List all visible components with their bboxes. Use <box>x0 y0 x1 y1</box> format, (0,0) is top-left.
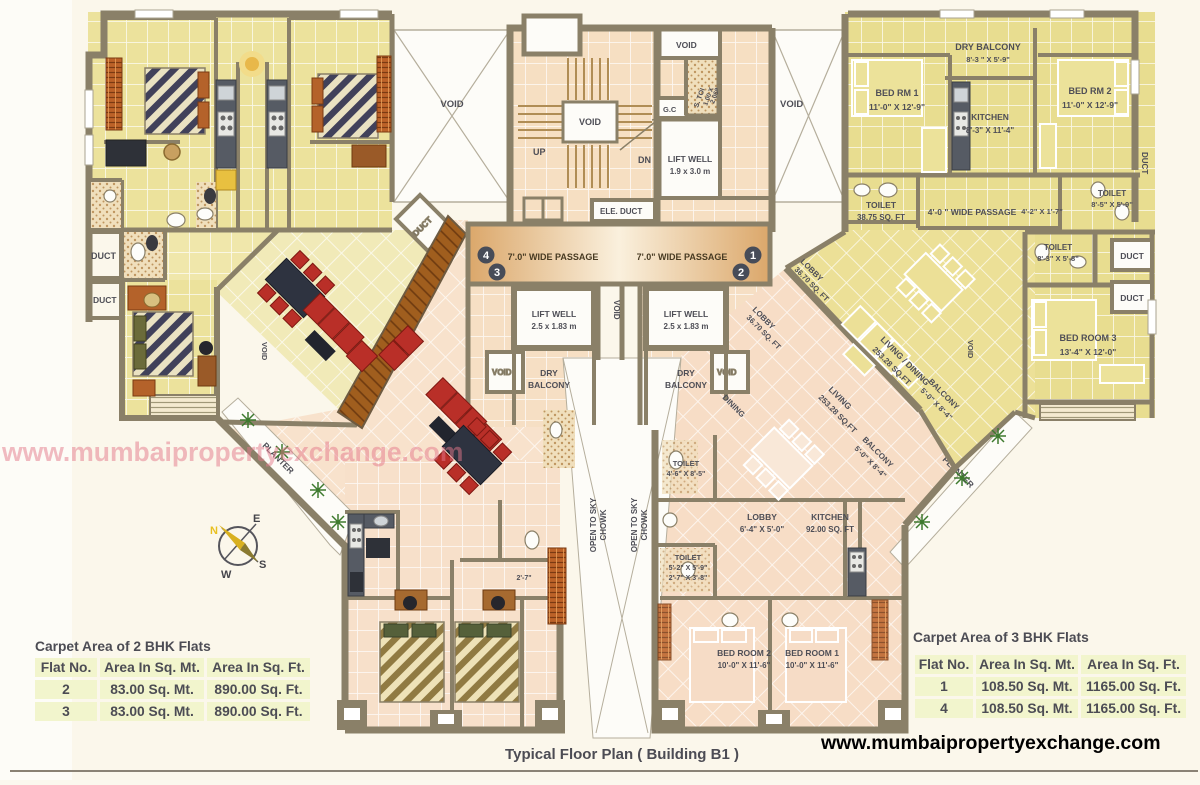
svg-text:KITCHEN: KITCHEN <box>971 112 1009 122</box>
svg-text:TOILET: TOILET <box>1044 243 1072 252</box>
svg-text:8'-5" X 5'-9": 8'-5" X 5'-9" <box>1091 200 1133 209</box>
svg-text:92.00 SQ. FT: 92.00 SQ. FT <box>806 525 854 534</box>
svg-text:OPEN TO SKY: OPEN TO SKY <box>589 497 598 552</box>
svg-text:UP: UP <box>533 147 546 157</box>
svg-text:5'-2" X 5'-9": 5'-2" X 5'-9" <box>669 565 708 572</box>
svg-text:BALCONY: BALCONY <box>665 380 707 390</box>
svg-text:S: S <box>259 559 266 571</box>
svg-text:1: 1 <box>750 250 756 262</box>
svg-text:CHOWK: CHOWK <box>599 509 608 540</box>
svg-text:VOID: VOID <box>579 117 602 127</box>
svg-text:BED ROOM 3: BED ROOM 3 <box>1059 333 1116 343</box>
svg-text:4'-0 " WIDE PASSAGE: 4'-0 " WIDE PASSAGE <box>928 207 1017 217</box>
svg-text:2'-7" X 3'-8": 2'-7" X 3'-8" <box>669 575 708 582</box>
svg-text:2.5 x 1.83 m: 2.5 x 1.83 m <box>532 322 577 331</box>
svg-text:CHOWK: CHOWK <box>640 509 649 540</box>
svg-text:LIFT WELL: LIFT WELL <box>664 309 708 319</box>
svg-text:N: N <box>210 525 218 537</box>
svg-text:38.75 SQ. FT: 38.75 SQ. FT <box>857 213 905 222</box>
svg-text:W: W <box>221 569 232 581</box>
svg-text:E: E <box>253 513 260 525</box>
svg-text:ELE. DUCT: ELE. DUCT <box>600 207 642 216</box>
svg-text:13'-4" X 12'-0": 13'-4" X 12'-0" <box>1060 347 1117 357</box>
svg-text:10'-0" X 11'-6": 10'-0" X 11'-6" <box>786 661 839 670</box>
svg-text:10'-0" X 11'-6": 10'-0" X 11'-6" <box>718 661 771 670</box>
svg-text:4'-6" X 8'-5": 4'-6" X 8'-5" <box>667 471 706 478</box>
svg-text:VOID: VOID <box>440 99 463 110</box>
svg-text:8'-3 " X 5'-9": 8'-3 " X 5'-9" <box>966 55 1010 64</box>
svg-text:4'-2" X 1'-7": 4'-2" X 1'-7" <box>1021 207 1063 216</box>
svg-text:2: 2 <box>738 267 744 279</box>
svg-text:DUCT: DUCT <box>93 295 117 305</box>
svg-text:3: 3 <box>494 267 500 279</box>
svg-text:G.C: G.C <box>663 105 677 114</box>
svg-text:TOILET: TOILET <box>675 553 702 562</box>
svg-text:DRY BALCONY: DRY BALCONY <box>955 42 1021 52</box>
svg-text:2.5 x 1.83 m: 2.5 x 1.83 m <box>664 322 709 331</box>
svg-text:DUCT: DUCT <box>1140 152 1149 174</box>
svg-text:OPEN TO SKY: OPEN TO SKY <box>630 497 639 552</box>
svg-text:VOID: VOID <box>260 342 269 361</box>
svg-text:LIFT WELL: LIFT WELL <box>668 154 712 164</box>
svg-text:8'-3" X 11'-4": 8'-3" X 11'-4" <box>966 126 1015 135</box>
svg-text:7'.0" WIDE PASSAGE: 7'.0" WIDE PASSAGE <box>637 252 728 262</box>
svg-text:DUCT: DUCT <box>91 251 116 261</box>
svg-text:6'-4" X 5'-0": 6'-4" X 5'-0" <box>740 525 785 534</box>
svg-text:VOID: VOID <box>780 99 803 110</box>
svg-text:DN: DN <box>638 155 651 165</box>
svg-text:VOID: VOID <box>966 340 975 359</box>
svg-text:DRY: DRY <box>540 368 558 378</box>
svg-text:BED ROOM 1: BED ROOM 1 <box>785 648 839 658</box>
svg-text:TOILET: TOILET <box>866 200 897 210</box>
svg-text:LOBBY: LOBBY <box>747 512 777 522</box>
svg-text:7'.0" WIDE PASSAGE: 7'.0" WIDE PASSAGE <box>508 252 599 262</box>
svg-text:11'-0" X 12'-9": 11'-0" X 12'-9" <box>869 102 925 112</box>
svg-text:1.9 x 3.0 m: 1.9 x 3.0 m <box>670 167 710 176</box>
svg-text:KITCHEN: KITCHEN <box>811 512 849 522</box>
svg-text:4: 4 <box>483 250 490 262</box>
svg-text:DRY: DRY <box>677 368 695 378</box>
svg-text:11'-0" X 12'-9": 11'-0" X 12'-9" <box>1062 100 1118 110</box>
svg-text:DUCT: DUCT <box>1120 293 1144 303</box>
svg-text:8'-3" X 5'-8": 8'-3" X 5'-8" <box>1037 254 1079 263</box>
svg-text:LIFT WELL: LIFT WELL <box>532 309 576 319</box>
svg-text:VOID: VOID <box>676 40 697 50</box>
svg-text:TOILET: TOILET <box>1098 189 1126 198</box>
svg-text:BED RM 2: BED RM 2 <box>1068 86 1111 96</box>
svg-text:BALCONY: BALCONY <box>528 380 570 390</box>
svg-text:VOID: VOID <box>612 300 621 320</box>
svg-text:BED ROOM 2: BED ROOM 2 <box>717 648 771 658</box>
svg-text:DUCT: DUCT <box>1120 251 1144 261</box>
svg-text:2'-7": 2'-7" <box>516 575 531 582</box>
svg-text:TOILET: TOILET <box>673 459 700 468</box>
svg-text:VOID: VOID <box>492 368 512 377</box>
svg-text:BED RM 1: BED RM 1 <box>875 88 918 98</box>
